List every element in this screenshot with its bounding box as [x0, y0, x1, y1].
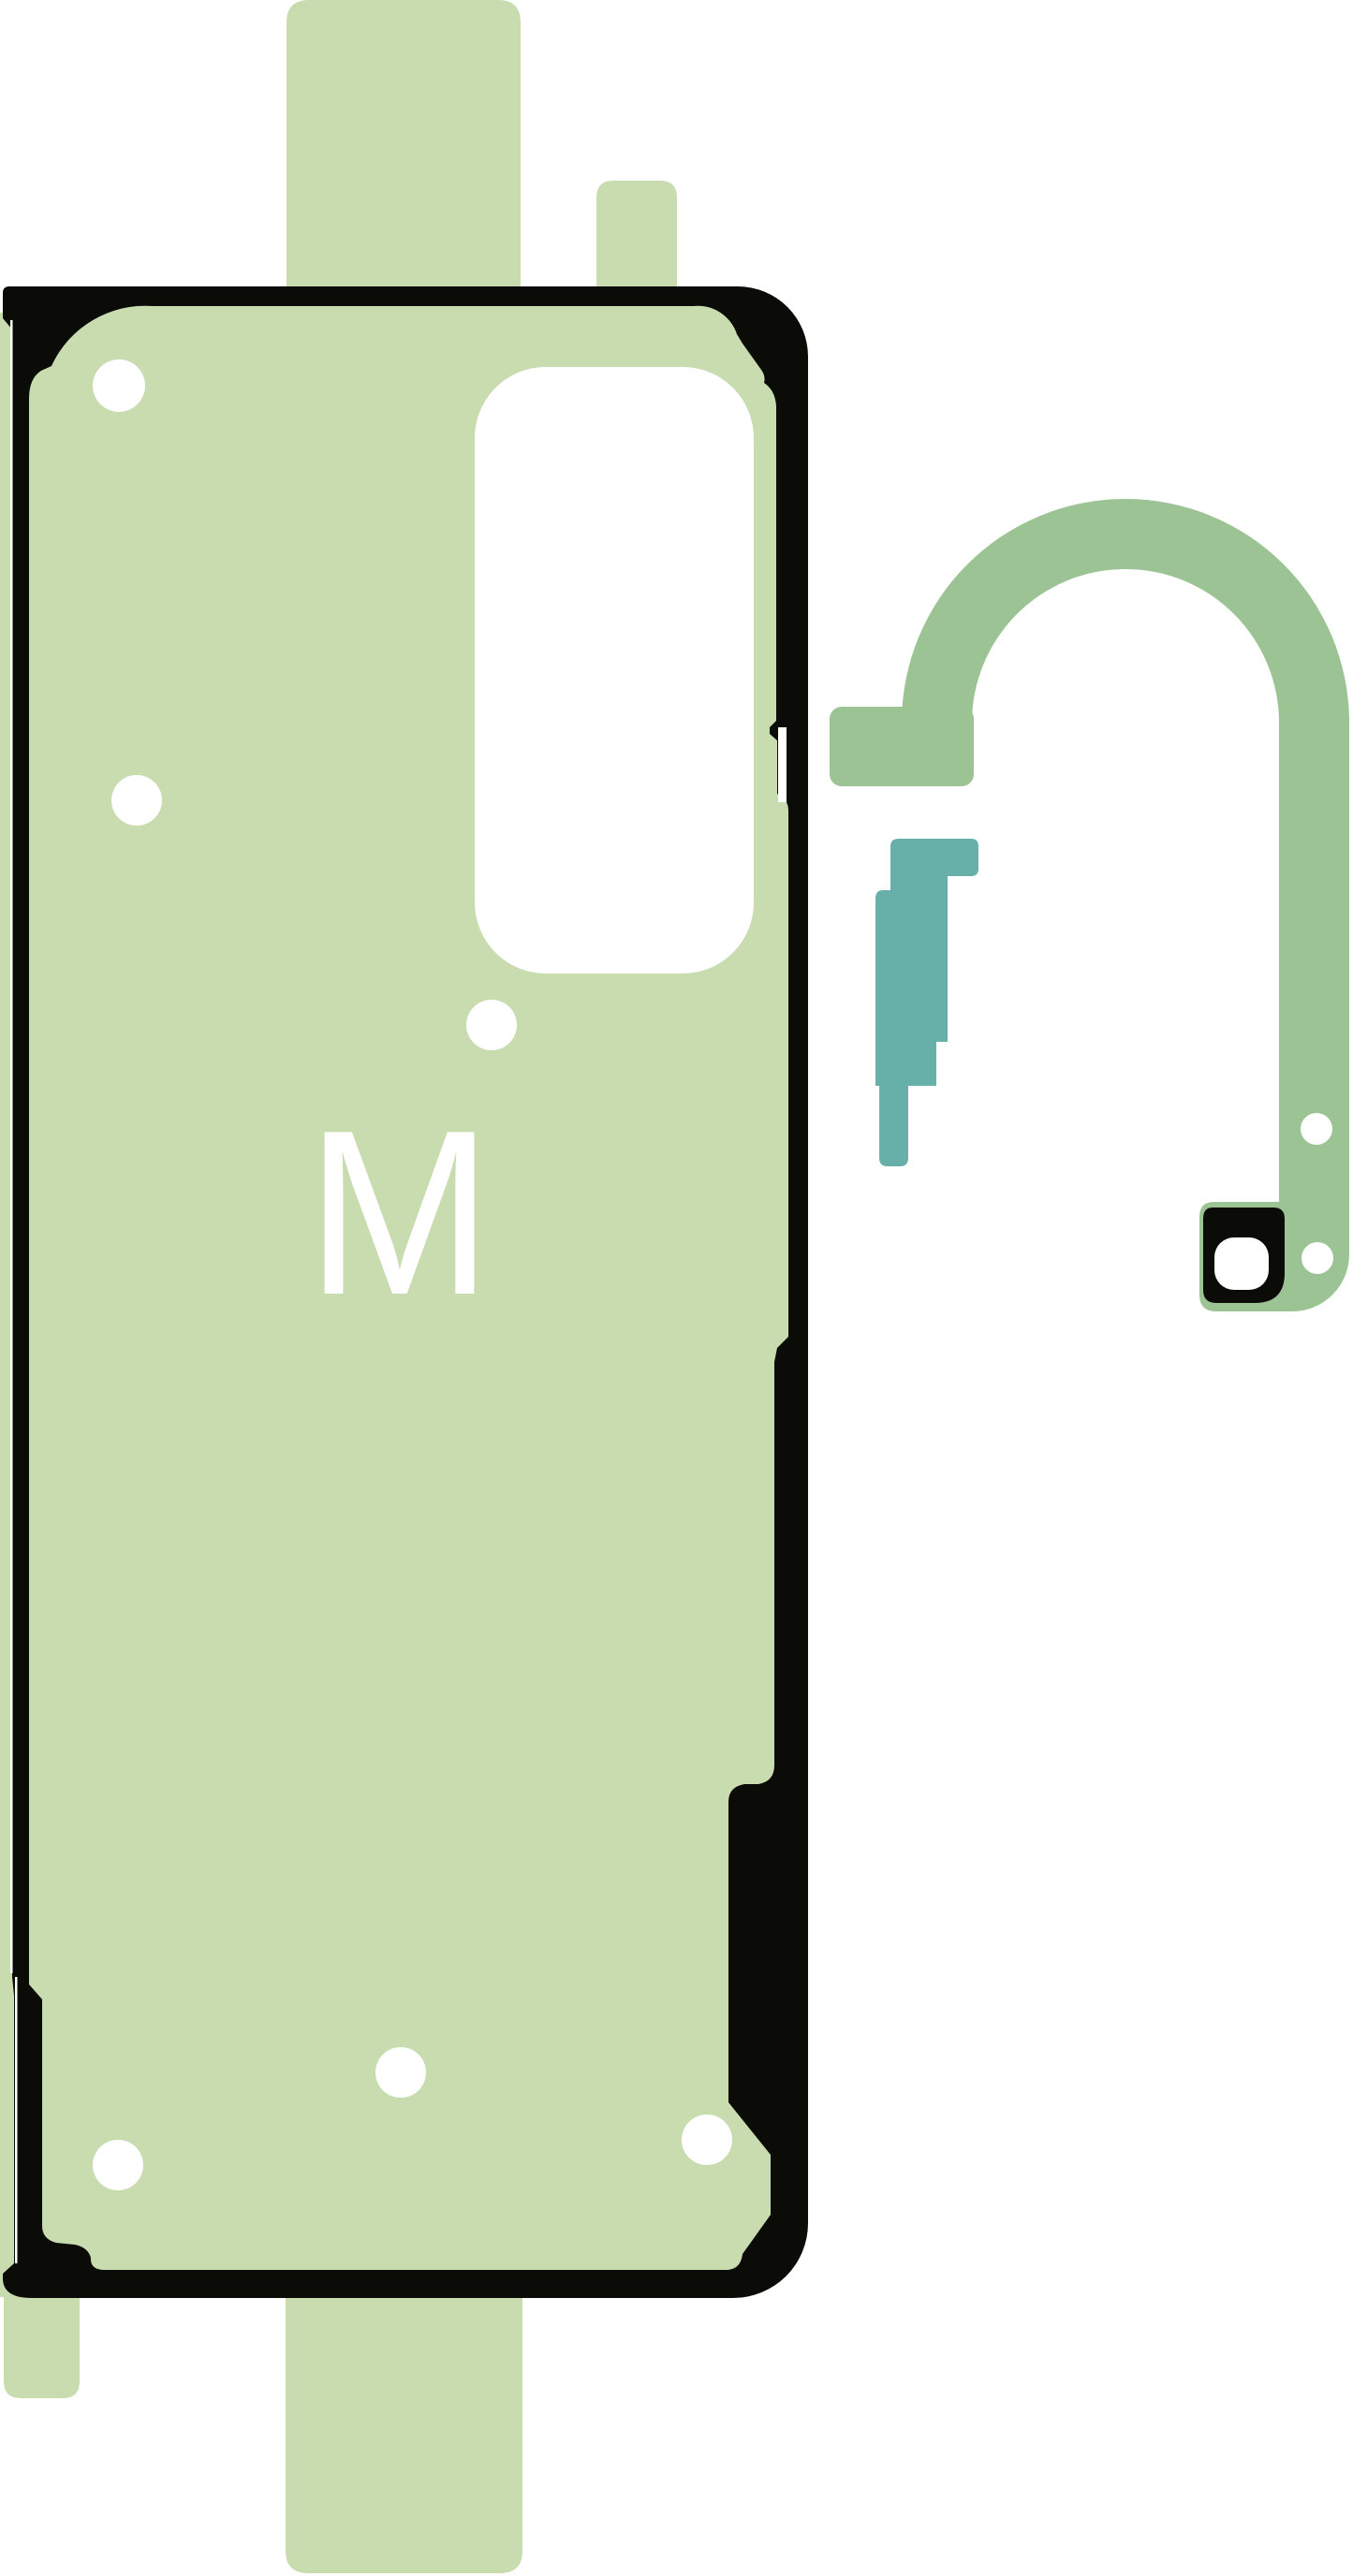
svg-text:M: M [306, 1082, 493, 1344]
